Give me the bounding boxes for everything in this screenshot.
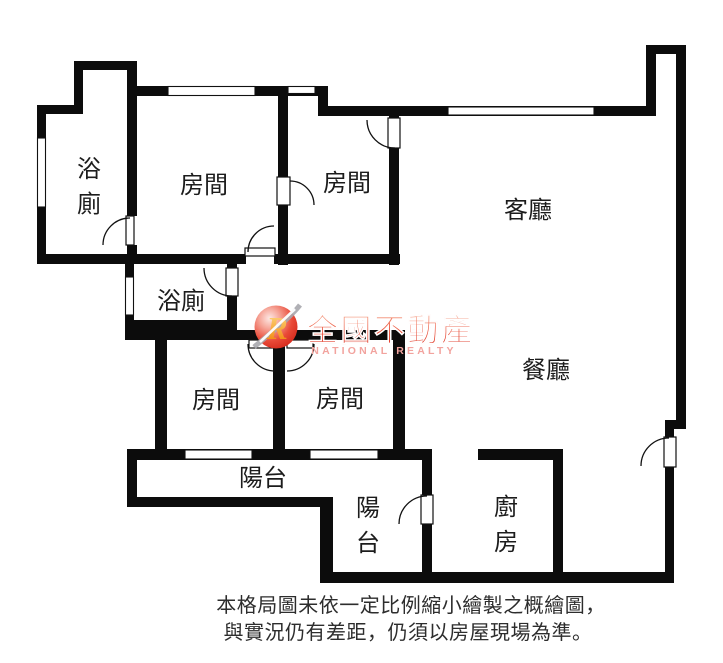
wall-segment	[273, 338, 285, 460]
wall-segment	[665, 420, 686, 429]
wall-segment	[553, 449, 563, 572]
door-main-entry	[641, 437, 676, 467]
label-bedroom-top1: 房間	[180, 172, 228, 199]
brand-name-en: NATIONAL REALTY	[311, 345, 456, 357]
label-bedroom-top2: 房間	[323, 170, 371, 197]
wall-segment	[646, 45, 656, 116]
label-dining: 餐廳	[522, 357, 570, 384]
window-living	[448, 107, 594, 115]
window-bedroom-low1	[185, 450, 252, 459]
label-balcony2-char2: 台	[356, 530, 380, 557]
wall-segment	[676, 45, 686, 429]
label-bath2: 浴廁	[157, 288, 205, 315]
label-bath1-char1: 浴	[77, 156, 101, 183]
wall-segment	[278, 86, 288, 265]
disclaimer-line2: 與實況仍有差距，仍須以房屋現場為準。	[224, 621, 593, 644]
label-balcony1: 陽台	[239, 465, 287, 492]
wall-segment	[320, 572, 674, 583]
label-bedroom-low2: 房間	[316, 386, 364, 413]
door-bedroom-top1	[245, 226, 275, 264]
door-bath2	[204, 268, 238, 296]
window-bath1-left	[38, 138, 46, 207]
window-bath2-left	[126, 277, 134, 315]
floorplan-page: 浴 廁 房間 房間 客廳 浴廁 餐廳 房間 房間 陽台 陽 台 廚 房 R 全國…	[0, 0, 723, 663]
disclaimer-line1: 本格局圖未依一定比例縮小繪製之概繪圖，	[216, 594, 606, 617]
label-bath1-char2: 廁	[77, 191, 101, 218]
label-kitchen-char2: 房	[494, 529, 518, 556]
watermark: R 全國不動產 NATIONAL REALTY	[254, 305, 475, 357]
window-bedroom-low2	[310, 450, 378, 459]
door-between-top-bedrooms	[277, 177, 314, 205]
window-bedroom-top2	[288, 87, 315, 94]
window-bedroom-top1	[168, 87, 255, 96]
label-kitchen-char1: 廚	[494, 494, 518, 521]
brand-name: 全國不動產	[306, 313, 475, 348]
wall-segment	[155, 330, 167, 460]
label-bedroom-low1: 房間	[192, 387, 240, 414]
wall-segment	[74, 61, 136, 70]
wall-segment	[127, 497, 333, 507]
wall-segment	[37, 254, 137, 264]
door-bath1	[103, 216, 137, 245]
label-living: 客廳	[504, 197, 552, 224]
floorplan-canvas: 浴 廁 房間 房間 客廳 浴廁 餐廳 房間 房間 陽台 陽 台 廚 房 R 全國…	[0, 0, 723, 663]
disclaimer: 本格局圖未依一定比例縮小繪製之概繪圖， 與實況仍有差距，仍須以房屋現場為準。	[216, 594, 606, 644]
wall-segment	[478, 449, 563, 460]
door-balcony2	[399, 495, 433, 524]
wall-segment	[318, 86, 328, 116]
wall-segment	[320, 497, 333, 583]
wall-segment	[125, 320, 237, 331]
label-balcony2-char1: 陽	[356, 496, 380, 522]
door-bedroom-top2	[367, 118, 400, 148]
